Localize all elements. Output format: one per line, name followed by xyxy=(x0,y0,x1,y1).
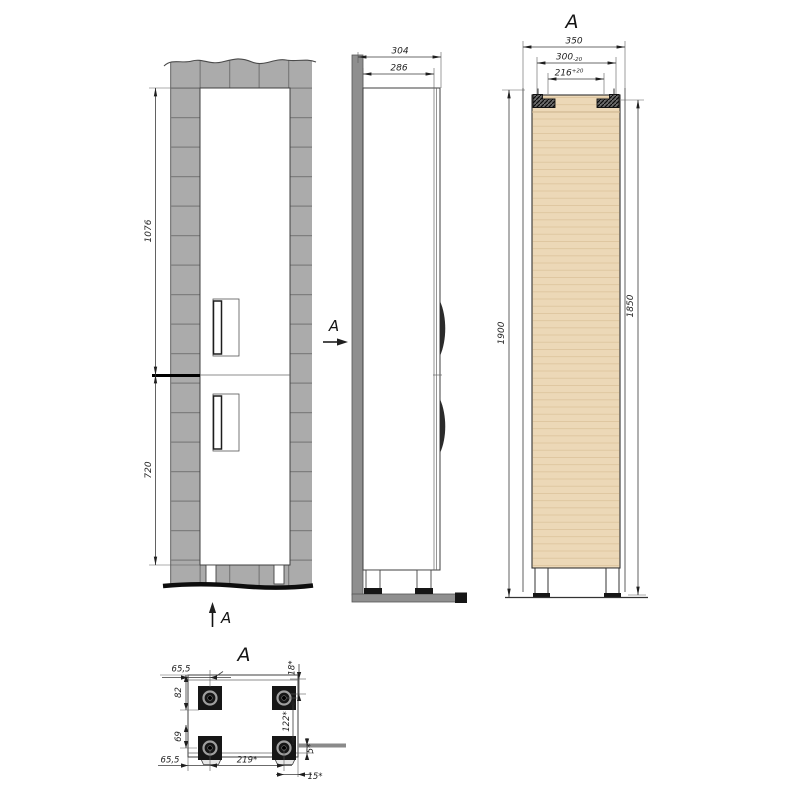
floor-end-cap xyxy=(455,593,467,604)
dim-1900: 1900 xyxy=(497,321,507,344)
section-view-label: A xyxy=(564,11,579,33)
section-arrow-right: A xyxy=(323,317,348,346)
door-handle-lower xyxy=(213,394,239,451)
technical-drawing: 1076 720 A A xyxy=(0,0,800,800)
side-leg-right xyxy=(417,570,431,589)
section-label-right: A xyxy=(328,317,339,335)
dim-122: 122* xyxy=(282,711,292,731)
side-foot-right xyxy=(415,588,433,594)
dim-216-tol: +20 xyxy=(572,69,584,75)
foot-top-left xyxy=(198,686,222,710)
dim-219: 219* xyxy=(237,756,257,766)
section-foot-right xyxy=(604,593,621,598)
side-leg-left xyxy=(366,570,380,589)
dim-216-value: 216 xyxy=(555,69,572,79)
section-leg-right xyxy=(606,568,619,594)
dim-side-depths: 304 286 xyxy=(358,47,441,89)
section-leg-left xyxy=(535,568,548,594)
dim-1076: 1076 xyxy=(144,219,154,242)
side-view: 304 286 xyxy=(352,47,467,604)
wall-strip xyxy=(352,55,363,595)
dim-300-value: 300 xyxy=(556,53,573,63)
dim-1850: 1850 xyxy=(626,294,636,317)
dim-18: 18* xyxy=(288,660,298,675)
dim-69: 69 xyxy=(174,731,184,742)
dim-15: 15* xyxy=(307,772,322,782)
handle-profile-upper xyxy=(440,301,445,356)
side-foot-left xyxy=(364,588,382,594)
dim-300-tol: -20 xyxy=(573,57,582,63)
dim-5: 5* xyxy=(306,744,316,754)
dim-304: 304 xyxy=(391,47,408,57)
dim-82: 82 xyxy=(174,687,184,698)
section-arrow-bottom: A xyxy=(209,602,231,627)
dim-65-5-top: 65,5 xyxy=(172,665,191,675)
front-view: 1076 720 A A xyxy=(144,48,348,627)
dim-350: 350 xyxy=(565,37,582,47)
dim-720: 720 xyxy=(144,461,154,478)
section-view: A 350 300-20 216+20 xyxy=(497,11,648,598)
plan-view: A xyxy=(158,644,346,782)
section-foot-left xyxy=(533,593,550,598)
dim-216: 216+20 xyxy=(555,69,584,79)
cabinet-side xyxy=(363,88,440,570)
section-label-bottom: A xyxy=(220,609,231,627)
door-handle-upper xyxy=(213,299,239,356)
panel-grain xyxy=(533,96,620,568)
front-leg-left xyxy=(206,565,216,584)
floor-strip xyxy=(352,594,462,602)
dim-section-widths: 350 300-20 216+20 xyxy=(523,37,625,95)
dim-65-5-bottom: 65,5 xyxy=(161,756,180,766)
front-leg-right xyxy=(274,565,284,584)
plan-view-label: A xyxy=(236,644,251,666)
dim-286: 286 xyxy=(390,64,407,74)
handle-profile-lower xyxy=(440,399,445,453)
dim-300: 300-20 xyxy=(556,53,583,64)
